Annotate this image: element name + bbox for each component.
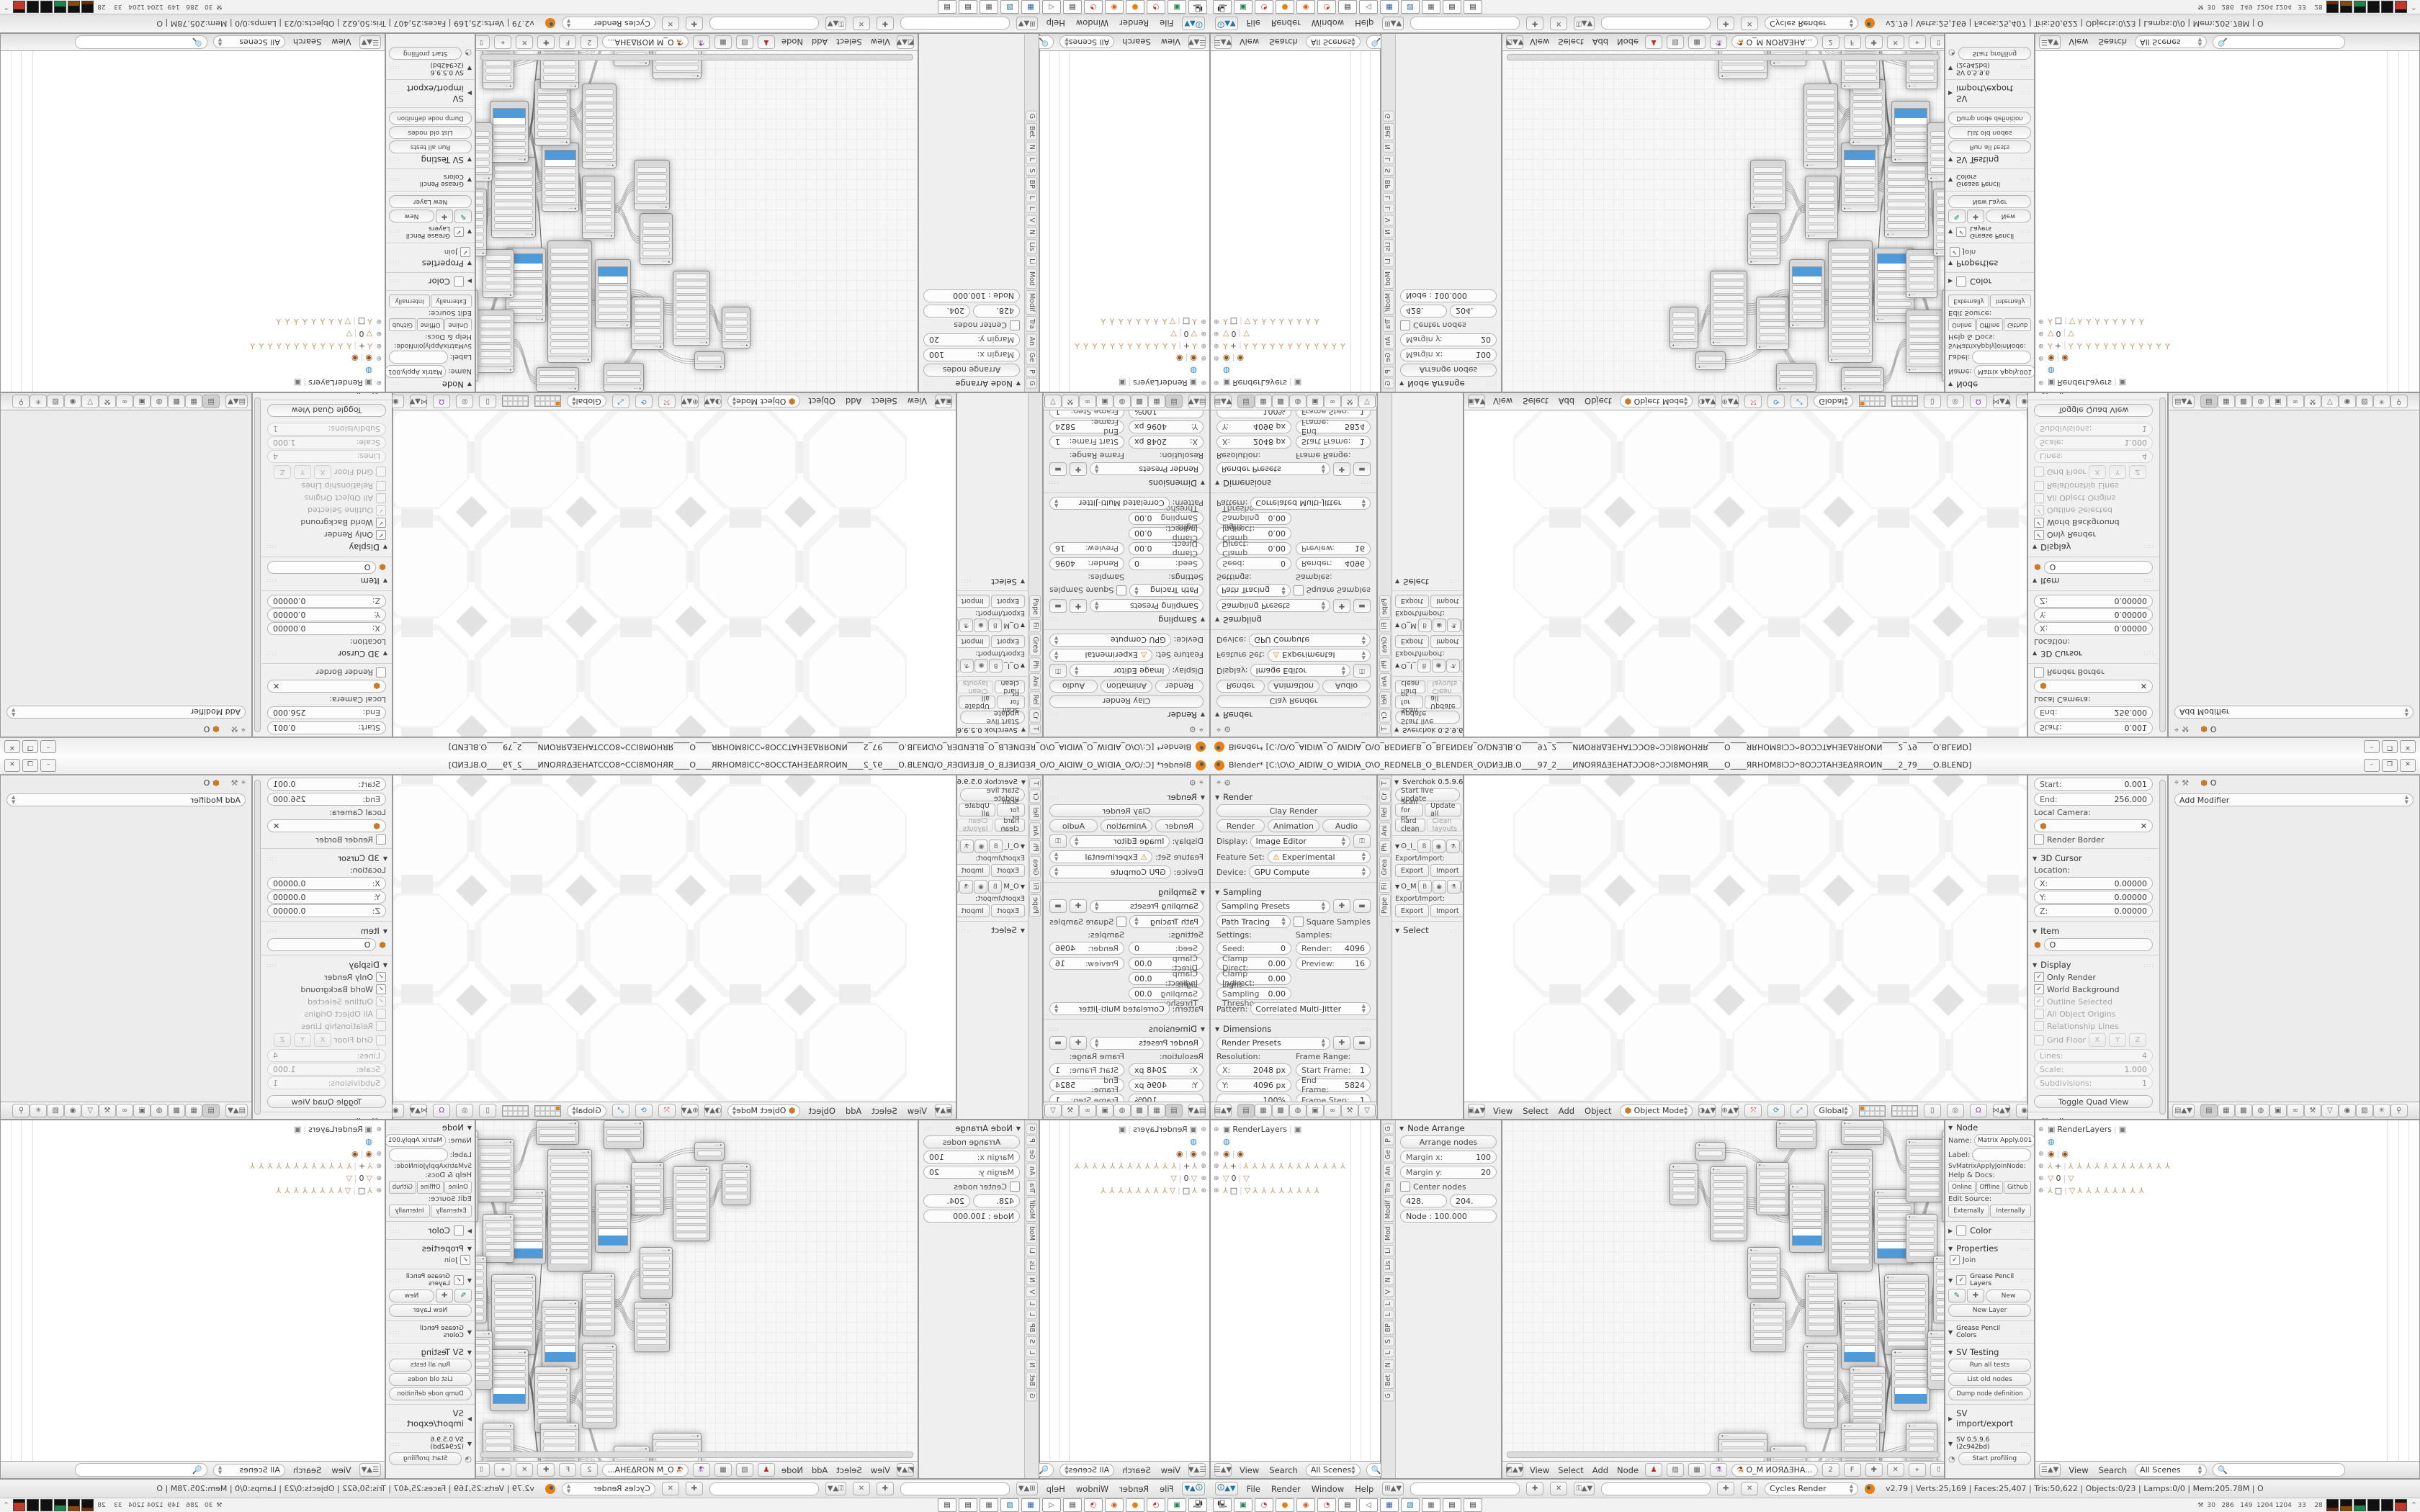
sverchok-node-7[interactable]: ▾ ····: [1750, 160, 1786, 210]
add-scene-button[interactable]: ✚: [1717, 17, 1734, 30]
properties-tab-7[interactable]: ▽: [2321, 395, 2339, 408]
gp-new-button[interactable]: New: [1986, 210, 2031, 223]
viewport-shading-button[interactable]: ◑▲▼: [1698, 1104, 1716, 1117]
cursor-panel-header[interactable]: 3D Cursor: [338, 649, 380, 659]
properties-tab-11[interactable]: ⚲: [2390, 1104, 2408, 1117]
outliner-row-5[interactable]: ⊕⅄□|▽⅄ ⅄ ⅄ ⅄ ⅄ ⅄ ⅄ ⅄: [1069, 1184, 1206, 1197]
join-checkbox[interactable]: ✓: [1950, 1255, 1960, 1265]
taskbar-app-chrome[interactable]: ◔: [1147, 1498, 1165, 1512]
add-menu[interactable]: Add: [810, 1465, 830, 1475]
properties-tab-7[interactable]: ▽: [1358, 395, 1376, 408]
shelf-tab-V[interactable]: V: [1026, 1287, 1038, 1297]
add-screen-button[interactable]: ✚: [877, 17, 894, 30]
sverchok-node-8[interactable]: ▾ ····: [582, 1273, 615, 1336]
samples-preview-field[interactable]: Preview:16: [1049, 957, 1124, 970]
properties-tab-9[interactable]: ▨: [47, 395, 64, 408]
run-all-tests-button[interactable]: Run all tests: [389, 140, 472, 153]
properties-tab-5[interactable]: ∞: [116, 1104, 133, 1117]
taskbar-app-calculator[interactable]: ▦: [1422, 1498, 1440, 1512]
list-old-nodes-button[interactable]: List old nodes: [1948, 126, 2031, 139]
view-menu[interactable]: View: [1159, 37, 1183, 48]
sverchok-node-8[interactable]: ▾ ····: [582, 176, 615, 239]
sverchok-node-5[interactable]: ▾ ····: [547, 1149, 592, 1272]
render-button[interactable]: Render: [1216, 819, 1265, 832]
clay-render-button[interactable]: Clay Render: [1049, 695, 1204, 708]
dump-node-definition-button[interactable]: Dump node definition: [1948, 1387, 2031, 1400]
search-menu[interactable]: Search: [291, 37, 324, 48]
unlink-tree-button[interactable]: ✕: [1887, 35, 1904, 49]
sverchok-node-3[interactable]: ▾ ····: [1756, 297, 1789, 350]
scene-icon[interactable]: ⚿▲▼: [1574, 17, 1595, 30]
import-button[interactable]: Import: [957, 904, 990, 917]
sv-version-panel-header[interactable]: SV 0.5.9.6 (2c942bd): [1956, 61, 2017, 76]
shelf-tab-N[interactable]: N: [1383, 1359, 1394, 1370]
local-camera-field[interactable]: ⬢✕: [2034, 819, 2153, 832]
add-screen-button[interactable]: ✚: [1526, 17, 1543, 30]
clip-start-field[interactable]: Start:0.001: [2034, 721, 2153, 734]
remove-preset-button[interactable]: ▬: [1353, 599, 1371, 613]
taskbar-app-volume[interactable]: ◁: [1042, 1498, 1061, 1512]
properties-tab-3[interactable]: ◍: [151, 1104, 168, 1117]
scene-icon[interactable]: ⚿▲▼: [825, 1482, 846, 1495]
grid-floor-checkbox[interactable]: [376, 1035, 386, 1045]
resolution-x-field[interactable]: X:2048 px: [1129, 436, 1204, 449]
grid-lines-field[interactable]: Lines:4: [267, 1049, 386, 1062]
pin-icon[interactable]: ⌖: [1909, 35, 1926, 49]
tree-toggle-B[interactable]: B: [988, 618, 1002, 632]
window-menu[interactable]: Window: [1074, 1484, 1111, 1494]
view-menu[interactable]: View: [1237, 37, 1261, 48]
layers-grid-1[interactable]: [1859, 396, 1886, 408]
sverchok-node-17[interactable]: ▾ ····: [475, 1331, 493, 1390]
shading-panel-header[interactable]: Shading: [346, 1117, 380, 1119]
github-button[interactable]: Github: [389, 1181, 416, 1194]
display-dropdown[interactable]: Image Editor▲▼: [1070, 665, 1170, 678]
pattern-dropdown[interactable]: Correlated Multi-Jitter▲▼: [1049, 497, 1170, 510]
lock-icon[interactable]: ⚿: [1353, 664, 1371, 678]
item-panel-header[interactable]: Item: [361, 926, 380, 936]
samples-render-field[interactable]: Render:4096: [1049, 942, 1124, 955]
grid-floor-checkbox[interactable]: [376, 467, 386, 477]
cursor-z-field[interactable]: Z:0.00000: [2034, 595, 2153, 608]
sverchok-node-1[interactable]: ▾ ····: [722, 307, 750, 348]
edit-internally-button[interactable]: Internally: [1990, 294, 2031, 307]
editor-type-button[interactable]: ☰▲▼: [2039, 1463, 2061, 1477]
sverchok-node-17[interactable]: ▾ ····: [1927, 1331, 1945, 1390]
color-panel-header[interactable]: Color: [429, 276, 450, 287]
resolution-percent-field[interactable]: 100%: [1216, 410, 1291, 418]
shelf-tab-Li[interactable]: Li: [1026, 1245, 1038, 1256]
shelf-tab-Ani[interactable]: Ani: [1379, 673, 1391, 690]
editor-type-button[interactable]: ▤▲▼: [1214, 395, 1232, 408]
online-docs-button[interactable]: Online: [444, 1181, 472, 1194]
viewport-shading-button[interactable]: ◑▲▼: [1698, 395, 1716, 408]
gp-layers-checkbox[interactable]: ✓: [1956, 1275, 1966, 1285]
viewport-shading-button[interactable]: ◑▲▼: [704, 395, 722, 408]
render-border-checkbox[interactable]: [376, 667, 386, 678]
view-menu[interactable]: View: [1159, 1465, 1183, 1475]
node-label-field[interactable]: [389, 1148, 448, 1161]
sv-testing-panel-header[interactable]: SV Testing: [1956, 1347, 1999, 1357]
node-arrange-panel-header[interactable]: Node Arrange: [1407, 1123, 1465, 1133]
node-name-field[interactable]: Matrix Apply.001: [1974, 1134, 2034, 1147]
shelf-tab-Ge[interactable]: Ge: [1383, 1147, 1394, 1162]
add-preset-button[interactable]: ✚: [1070, 899, 1087, 913]
add-modifier-dropdown[interactable]: Add Modifier▲▼: [2174, 793, 2414, 806]
outliner-row-4[interactable]: ⊕▽0|▽: [1069, 1172, 1206, 1184]
new-tree-button[interactable]: ✚: [537, 1463, 555, 1477]
render-panel-header[interactable]: Render: [1168, 792, 1197, 802]
tree-toggle-⚗[interactable]: ⚗: [1447, 618, 1461, 632]
outliner-row-0[interactable]: ⊕▣RenderLayers|▣: [1214, 1123, 1351, 1135]
sverchok-node-12[interactable]: ▾ ····: [491, 157, 536, 238]
properties-tab-2[interactable]: ▩: [168, 1104, 185, 1117]
shelf-tab-Bet[interactable]: Bet: [1383, 1372, 1394, 1389]
render-engine-dropdown[interactable]: Cycles Render▲▼: [562, 17, 655, 30]
margin-x-field[interactable]: Margin x:100: [923, 1151, 1020, 1164]
taskbar-app-notepad[interactable]: ▤: [1338, 0, 1357, 14]
outliner-row-5[interactable]: ⊕⅄□|▽⅄ ⅄ ⅄ ⅄ ⅄ ⅄ ⅄ ⅄: [2038, 1184, 2388, 1197]
render-border-checkbox[interactable]: [376, 834, 386, 845]
hard-clean-button[interactable]: hard clean: [995, 680, 1025, 693]
proportional-edit-button[interactable]: ◎: [456, 1104, 473, 1117]
restore-button[interactable]: ❐: [2382, 741, 2398, 754]
manipulator-rotate-icon[interactable]: ⟳: [1767, 395, 1785, 408]
join-checkbox[interactable]: ✓: [460, 1255, 470, 1265]
axis-y-toggle[interactable]: Y: [294, 465, 311, 479]
compositing-tree-icon[interactable]: ▨: [1667, 35, 1684, 49]
shelf-tab-L[interactable]: L: [1383, 193, 1394, 202]
editor-type-button[interactable]: ▤▲▼: [1214, 1104, 1232, 1117]
mode-dropdown[interactable]: ⬢ Object Mode▲▼: [1620, 1104, 1693, 1117]
view-menu[interactable]: View: [1491, 1106, 1515, 1116]
help-menu[interactable]: Help: [1353, 19, 1376, 29]
properties-panel-header[interactable]: Properties: [1956, 1243, 1998, 1254]
select-menu[interactable]: Select: [1520, 397, 1550, 407]
sverchok-node-4[interactable]: ▾ ····: [595, 1184, 631, 1253]
node-tree-selector[interactable]: ⚗ O_M ͶOЯΔƎHA...: [602, 36, 689, 49]
world-background-checkbox[interactable]: ✓: [2034, 984, 2044, 994]
offline-docs-button[interactable]: Offline: [417, 318, 444, 331]
node-panel-header[interactable]: Node: [1956, 379, 1978, 390]
shelf-tab-Grea[interactable]: Grea: [1030, 634, 1041, 656]
sverchok-node-14[interactable]: ▾ ····: [1803, 84, 1838, 168]
display-mode-dropdown[interactable]: All Scenes▲▼: [2135, 36, 2207, 49]
properties-tab-4[interactable]: ▣: [133, 1104, 151, 1117]
shelf-tab-Modif[interactable]: Modif: [1026, 290, 1038, 315]
node-editor-canvas[interactable]: ▾ ····▾ ····▾ ····▾ ····▾ ····▾ ····▾ ··…: [1502, 1120, 1945, 1479]
render-engine-dropdown[interactable]: Cycles Render▲▼: [1765, 17, 1858, 30]
sverchok-tree-icon[interactable]: ⚗: [1710, 35, 1727, 49]
online-docs-button[interactable]: Online: [444, 318, 472, 331]
outliner-row-3[interactable]: ⊕⅄+|⅄ ⅄ ⅄ ⅄ ⅄ ⅄ ⅄ ⅄ ⅄ ⅄ ⅄ ⅄: [1214, 1160, 1351, 1172]
properties-tab-3[interactable]: ◍: [151, 395, 168, 408]
sverchok-node-19[interactable]: ▾ ····: [1933, 1256, 1945, 1323]
fake-user-button[interactable]: F: [1844, 1463, 1861, 1477]
outline-selected-checkbox[interactable]: ✓: [376, 996, 386, 1007]
tree-toggle-P[interactable]: P: [1461, 659, 1463, 672]
item-name-field[interactable]: O: [2044, 938, 2153, 951]
color-checkbox[interactable]: [1956, 1225, 1966, 1236]
shelf-tab-Lis[interactable]: Lis: [1026, 239, 1038, 254]
render-button[interactable]: Render: [1216, 680, 1265, 693]
grid-scale-field[interactable]: Scale:1.000: [267, 436, 386, 449]
dump-node-definition-button[interactable]: Dump node definition: [389, 1387, 472, 1400]
shelf-tab-L[interactable]: L: [1026, 193, 1038, 202]
sverchok-node-10[interactable]: ▾ ····: [1906, 1139, 1943, 1202]
editor-type-button[interactable]: ▣▲▼: [1468, 395, 1485, 408]
shelf-tab-Rel[interactable]: Rel: [1030, 691, 1041, 708]
node-name-field[interactable]: Matrix Apply.001: [386, 365, 446, 378]
sv-version-panel-header[interactable]: SV 0.5.9.6 (2c942bd): [403, 61, 464, 76]
sv-version-panel-header[interactable]: SV 0.5.9.6 (2c942bd): [1956, 1436, 2017, 1451]
display-panel-header[interactable]: Display: [349, 542, 379, 552]
color-panel-header[interactable]: Color: [429, 1225, 450, 1236]
animation-button[interactable]: Animation: [1101, 680, 1152, 693]
screen-layout-icon[interactable]: ⊞▲▼: [1382, 17, 1404, 30]
cursor-y-field[interactable]: Y:0.00000: [267, 608, 386, 621]
cursor-z-field[interactable]: Z:0.00000: [267, 904, 386, 917]
pattern-dropdown[interactable]: Correlated Multi-Jitter▲▼: [1250, 497, 1371, 510]
render-menu[interactable]: Render: [1117, 1484, 1151, 1494]
shelf-tab-G[interactable]: G: [1383, 1123, 1394, 1134]
gp-layers-panel-header[interactable]: Grease Pencil Layers: [403, 225, 450, 239]
samples-render-field[interactable]: Render:4096: [1296, 942, 1371, 955]
edit-externally-button[interactable]: Externally: [1948, 1205, 1989, 1218]
shelf-tab-L[interactable]: L: [1026, 204, 1038, 213]
remove-preset-button[interactable]: ▬: [1353, 899, 1371, 913]
tray-expand-icon[interactable]: ⌃: [3, 1500, 9, 1510]
item-name-field[interactable]: O: [267, 938, 376, 951]
os-title-bar[interactable]: Blender* [C:\O\O_AIDIW_O_WIDIA_O\O_REDNE…: [0, 756, 1210, 775]
taskbar-app-chrome[interactable]: ◔: [1255, 1498, 1273, 1512]
editor-type-button[interactable]: 🛈▲▼: [1215, 1482, 1238, 1495]
viewport-3d[interactable]: ▣▲▼ View Select Add Object ⬢ Object Mode…: [393, 775, 956, 1120]
editor-type-button[interactable]: ☰▲▼: [1214, 35, 1232, 49]
new-layer-button[interactable]: New Layer: [1948, 1304, 2031, 1317]
shelf-tab-T[interactable]: T: [1030, 724, 1041, 734]
gp-new-button[interactable]: New: [389, 1290, 434, 1302]
tree-toggle-⚗[interactable]: ⚗: [960, 659, 974, 672]
sverchok-panel-header[interactable]: Sverchok 0.5.9.6 (2c942bd): [1402, 726, 1463, 734]
sverchok-node-2[interactable]: ▾ ····: [1710, 1166, 1747, 1241]
node-editor-canvas[interactable]: ▾ ····▾ ····▾ ····▾ ····▾ ····▾ ····▾ ··…: [475, 33, 918, 392]
shelf-tab-V[interactable]: V: [1383, 1287, 1394, 1297]
outliner-row-1[interactable]: ◍: [32, 364, 382, 377]
animation-button[interactable]: Animation: [1268, 819, 1319, 832]
only-render-checkbox[interactable]: ✓: [376, 972, 386, 982]
taskbar-app-chrome-2[interactable]: ◔: [1317, 0, 1336, 14]
edit-internally-button[interactable]: Internally: [1990, 1205, 2031, 1218]
sverchok-node-31[interactable]: ▾ ····: [604, 1120, 644, 1149]
outliner-row-4[interactable]: ⊕▽0|▽: [2038, 1172, 2388, 1184]
clean-layouts-button[interactable]: Clean layouts: [957, 680, 993, 693]
sverchok-node-31[interactable]: ▾ ····: [1776, 363, 1816, 392]
outliner-row-4[interactable]: ⊕▽0|▽: [32, 1172, 382, 1184]
arrange-height-field[interactable]: 204.: [923, 305, 970, 318]
taskbar-app-blender[interactable]: ●: [1126, 0, 1144, 14]
cursor-y-field[interactable]: Y:0.00000: [2034, 608, 2153, 621]
editor-type-button[interactable]: ▤▲▼: [1188, 1104, 1206, 1117]
outliner-row-2[interactable]: ⊕◉|◉: [32, 352, 382, 364]
display-mode-dropdown[interactable]: All Scenes▲▼: [1059, 1464, 1114, 1477]
window-menu[interactable]: Window: [1309, 19, 1346, 29]
outliner-row-0[interactable]: ⊕▣RenderLayers|▣: [32, 377, 382, 389]
properties-tab-7[interactable]: ▽: [2321, 1104, 2339, 1117]
tree-toggle-B[interactable]: B: [1418, 618, 1432, 632]
shelf-tab-N[interactable]: N: [1026, 1274, 1038, 1285]
outliner-row-0[interactable]: ⊕▣RenderLayers|▣: [2038, 1123, 2388, 1135]
properties-tab-3[interactable]: ◍: [1113, 395, 1131, 408]
properties-tab-6[interactable]: ⚒: [99, 395, 116, 408]
properties-tab-3[interactable]: ◍: [1113, 1104, 1131, 1117]
node-arrange-panel-header[interactable]: Node Arrange: [955, 1123, 1013, 1133]
toggle-quad-view-button[interactable]: Toggle Quad View: [2034, 404, 2153, 417]
clean-layouts-button[interactable]: Clean layouts: [1427, 819, 1463, 832]
layers-grid-2[interactable]: [502, 396, 529, 408]
color-panel-header[interactable]: Color: [1970, 1225, 1991, 1236]
clip-end-field[interactable]: End:256.000: [2034, 793, 2153, 806]
properties-tab-3[interactable]: ◍: [1289, 395, 1307, 408]
render-panel-header[interactable]: Render: [1168, 710, 1197, 720]
sverchok-node-2[interactable]: ▾ ····: [1710, 271, 1747, 346]
add-scene-button[interactable]: ✚: [1717, 1482, 1734, 1495]
shelf-tab-N[interactable]: N: [1026, 1359, 1038, 1370]
shelf-tab-S[interactable]: S: [1026, 166, 1038, 176]
snap-magnet-button[interactable]: Ω: [433, 1104, 450, 1117]
tray-expand-icon[interactable]: ⌃: [2411, 2, 2417, 12]
tree-toggle-P[interactable]: P: [957, 618, 959, 632]
resolution-y-field[interactable]: Y:4096 px: [1216, 420, 1291, 433]
add-scene-button[interactable]: ✚: [686, 17, 703, 30]
tree-toggle-◉[interactable]: ◉: [974, 880, 987, 894]
new-tree-button[interactable]: ✚: [1865, 35, 1883, 49]
node-scale-field[interactable]: Node : 100.000: [1400, 1210, 1497, 1223]
offline-docs-button[interactable]: Offline: [1976, 1181, 2004, 1194]
taskbar-app-spiral-app[interactable]: ◉: [1296, 1498, 1315, 1512]
shelf-tab-Mod[interactable]: Mod: [1026, 1223, 1038, 1243]
cursor-x-field[interactable]: X:0.00000: [267, 877, 386, 890]
os-title-bar[interactable]: Blender* [C:\O\O_AIDIW_O_WIDIA_O\O_REDNE…: [0, 737, 1210, 756]
editor-type-button[interactable]: ☰▲▼: [359, 35, 381, 49]
render-menu[interactable]: Render: [1117, 19, 1151, 29]
properties-tab-2[interactable]: ▩: [1272, 395, 1289, 408]
sverchok-node-0[interactable]: ▾ ····: [1695, 1142, 1726, 1161]
tree-toggle-◉[interactable]: ◉: [1433, 618, 1446, 632]
clip-end-field[interactable]: End:256.000: [267, 793, 386, 806]
sverchok-node-13[interactable]: ▾ ····: [1841, 143, 1878, 212]
import-button[interactable]: Import: [957, 595, 990, 608]
taskbar-app-blender[interactable]: ●: [1126, 1498, 1144, 1512]
tree-toggle-◉[interactable]: ◉: [1432, 840, 1446, 853]
taskbar-app-calculator[interactable]: ▦: [980, 0, 998, 14]
texture-tree-icon[interactable]: ▦: [1688, 1463, 1706, 1477]
cursor-panel-header[interactable]: 3D Cursor: [338, 853, 380, 863]
sverchok-node-6[interactable]: ▾ ····: [640, 1247, 673, 1299]
parent-tree-icon[interactable]: ⇧: [475, 1463, 490, 1477]
world-background-checkbox[interactable]: ✓: [376, 518, 386, 528]
shelf-tab-Mod[interactable]: Mod: [1026, 269, 1038, 289]
object-menu[interactable]: Object: [806, 1106, 837, 1116]
display-dropdown[interactable]: Image Editor▲▼: [1250, 665, 1350, 678]
properties-tab-4[interactable]: ▣: [1307, 395, 1324, 408]
shader-tree-icon[interactable]: ♟: [1645, 1463, 1662, 1477]
shelf-tab-Rel[interactable]: Rel: [1379, 691, 1391, 708]
start-frame-field[interactable]: Start Frame:1: [1296, 1063, 1371, 1076]
arrange-height-field[interactable]: 204.: [1450, 305, 1497, 318]
close-button[interactable]: ✕: [4, 759, 20, 772]
taskbar-app-image-viewer[interactable]: ▧: [1000, 1498, 1019, 1512]
taskbar-app-spiral-app[interactable]: ◉: [1105, 1498, 1124, 1512]
node-menu[interactable]: Node: [779, 37, 805, 48]
arrange-width-field[interactable]: 428.: [973, 305, 1020, 318]
display-panel-header[interactable]: Display: [2040, 960, 2071, 970]
n-panel-scrollbar[interactable]: [254, 780, 261, 1115]
outliner-row-5[interactable]: ⊕⅄□|▽⅄ ⅄ ⅄ ⅄ ⅄ ⅄ ⅄ ⅄: [32, 315, 382, 328]
outliner-row-4[interactable]: ⊕▽0|▽: [32, 328, 382, 340]
axis-y-toggle[interactable]: Y: [2109, 1033, 2126, 1047]
file-menu[interactable]: File: [1245, 1484, 1263, 1494]
tree-toggle-P[interactable]: P: [1461, 840, 1463, 853]
arrange-width-field[interactable]: 428.: [1400, 305, 1447, 318]
properties-tab-8[interactable]: ◉: [64, 395, 81, 408]
outliner-search-input[interactable]: 🔍: [2213, 35, 2345, 49]
properties-tab-5[interactable]: ∞: [2287, 1104, 2304, 1117]
toggle-quad-view-button[interactable]: Toggle Quad View: [267, 1095, 386, 1108]
frame-step-field[interactable]: Frame Step:1: [1049, 1094, 1124, 1102]
outliner-row-2[interactable]: ⊕◉|◉: [2038, 352, 2388, 364]
sverchok-node-2[interactable]: ▾ ····: [673, 271, 710, 346]
properties-tab-4[interactable]: ▣: [2269, 1104, 2287, 1117]
gp-add-icon[interactable]: ✚: [436, 210, 453, 223]
properties-tab-6[interactable]: ⚒: [1062, 395, 1079, 408]
shelf-tab-G[interactable]: G: [1383, 378, 1394, 389]
tree-toggle-P[interactable]: P: [957, 659, 959, 672]
shelf-tab-L[interactable]: L: [1383, 154, 1394, 163]
add-preset-button[interactable]: ✚: [1333, 1036, 1350, 1050]
margin-y-field[interactable]: Margin y:20: [923, 333, 1020, 346]
tree-toggle-⚗[interactable]: ⚗: [1447, 880, 1461, 894]
axis-x-toggle[interactable]: X: [314, 1033, 331, 1047]
properties-tab-1[interactable]: ▦: [2218, 395, 2235, 408]
shelf-tab-L[interactable]: L: [1026, 1310, 1038, 1319]
search-menu[interactable]: Search: [1267, 1465, 1300, 1475]
grid-subdivisions-field[interactable]: Subdivisions:1: [267, 423, 386, 436]
clip-end-field[interactable]: End:256.000: [267, 706, 386, 719]
editor-type-button[interactable]: ▣▲▼: [1468, 1104, 1485, 1117]
properties-tab-6[interactable]: ⚒: [1341, 395, 1358, 408]
arrange-width-field[interactable]: 428.: [973, 1194, 1020, 1207]
arrange-nodes-button[interactable]: Arrange nodes: [1400, 1135, 1497, 1148]
properties-tab-4[interactable]: ▣: [133, 395, 151, 408]
gp-pencil-icon[interactable]: ✎: [1948, 210, 1966, 223]
properties-tab-1[interactable]: ▦: [185, 1104, 202, 1117]
resolution-x-field[interactable]: X:2048 px: [1216, 436, 1291, 449]
sverchok-node-4[interactable]: ▾ ····: [595, 259, 631, 328]
run-all-tests-button[interactable]: Run all tests: [389, 1359, 472, 1372]
seed-field[interactable]: Seed:0: [1216, 942, 1291, 955]
outliner-row-0[interactable]: ⊕▣RenderLayers|▣: [1214, 377, 1351, 389]
shelf-tab-L[interactable]: L: [1026, 154, 1038, 163]
shader-tree-icon[interactable]: ♟: [1645, 35, 1662, 49]
taskbar-app-system-monitor[interactable]: ▣: [1168, 0, 1186, 14]
gp-pencil-icon[interactable]: ✎: [454, 1289, 472, 1302]
shelf-tab-S[interactable]: S: [1383, 1336, 1394, 1346]
node-editor-canvas[interactable]: ▾ ····▾ ····▾ ····▾ ····▾ ····▾ ····▾ ··…: [475, 1120, 918, 1479]
sverchok-node-3[interactable]: ▾ ····: [631, 297, 664, 350]
clamp-direct-field[interactable]: Clamp Direct:0.00: [1216, 957, 1291, 970]
n-panel-scrollbar[interactable]: [254, 397, 261, 732]
